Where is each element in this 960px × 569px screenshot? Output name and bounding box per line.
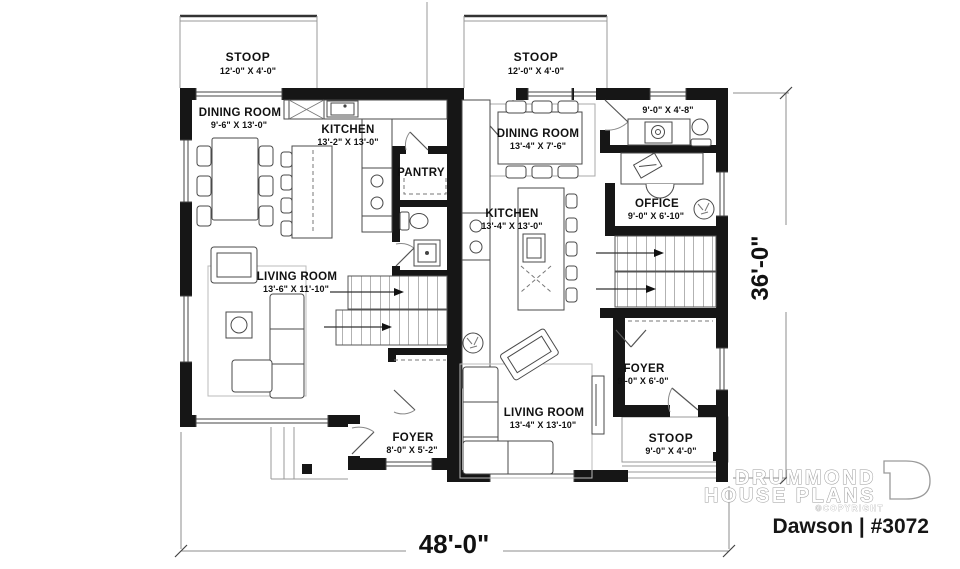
- island-sink: [523, 234, 545, 262]
- porch-bottom-left: [271, 427, 348, 479]
- left-living-size: 13'-6" X 11'-10": [263, 284, 329, 294]
- right-office-size: 9'-0" X 6'-10": [628, 211, 684, 221]
- stoop-top-left-name: STOOP: [226, 50, 271, 64]
- armchair-right: [499, 328, 559, 381]
- left-kitchen-name: KITCHEN: [321, 124, 374, 136]
- laundry-counter: [628, 119, 690, 145]
- right-foyer-name: FOYER: [623, 363, 665, 375]
- armchair-left: [211, 247, 257, 283]
- dimension-height: 36'-0": [733, 87, 792, 484]
- stoop-bottom-right-size: 9'-0" X 4'-0": [645, 446, 696, 456]
- stoop-top-left-size: 12'-0" X 4'-0": [220, 66, 276, 76]
- left-foyer-name: FOYER: [392, 432, 434, 444]
- kitchen-island-right: [518, 188, 577, 310]
- right-living-size: 13'-4" X 13'-10": [510, 420, 576, 430]
- right-utility-size: 9'-0" X 4'-8": [642, 105, 693, 115]
- powder-sink: [414, 240, 440, 266]
- plan-name-label: Dawson | #3072: [773, 515, 929, 538]
- stove: [362, 168, 392, 216]
- floor-plan-page: 48'-0" 36'-0" STOOP 12'-0" X 4'-0" STOOP…: [0, 0, 960, 569]
- stoop-bottom-right-name: STOOP: [649, 431, 694, 445]
- stairs-left: [324, 276, 447, 345]
- left-dining-size: 9'-6" X 13'-0": [211, 120, 267, 130]
- pantry-shelf: [404, 178, 446, 194]
- vent-box: [289, 100, 324, 119]
- floor-plan-canvas: 48'-0" 36'-0" STOOP 12'-0" X 4'-0" STOOP…: [0, 0, 960, 569]
- right-foyer-size: 9'-0" X 6'-0": [617, 376, 668, 386]
- width-dimension-label: 48'-0": [419, 529, 490, 559]
- office-desk: [621, 153, 703, 198]
- toilet: [400, 212, 428, 230]
- plant: [694, 199, 714, 219]
- stoop-top-right-name: STOOP: [514, 50, 559, 64]
- left-living-name: LIVING ROOM: [257, 271, 338, 283]
- kitchen-sink: [327, 101, 358, 117]
- tv-unit: [592, 376, 604, 434]
- chair: [691, 119, 711, 146]
- sofa-left: [232, 294, 304, 398]
- right-kitchen-name: KITCHEN: [485, 208, 538, 220]
- dining-table-left: [197, 138, 273, 226]
- drummond-logo-icon: [884, 461, 930, 499]
- side-table: [226, 312, 252, 338]
- left-dining-name: DINING ROOM: [199, 107, 282, 119]
- left-kitchen-size: 13'-2" X 13'-0": [317, 137, 378, 147]
- right-kitchen-size: 13'-4" X 13'-0": [481, 221, 542, 231]
- plant: [463, 333, 483, 353]
- brand-copyright: ©COPYRIGHT: [816, 504, 884, 513]
- right-office-name: OFFICE: [635, 198, 679, 210]
- kitchen-island-left: [281, 146, 332, 238]
- brand-block: DRUMMOND HOUSE PLANS ©COPYRIGHT Dawson |…: [704, 461, 930, 538]
- office-chair: [646, 184, 674, 198]
- right-living-name: LIVING ROOM: [504, 407, 585, 419]
- stoop-top-right-size: 12'-0" X 4'-0": [508, 66, 564, 76]
- left-pantry-name: PANTRY: [397, 167, 445, 179]
- right-dining-size: 13'-4" X 7'-6": [510, 141, 566, 151]
- height-dimension-label: 36'-0": [747, 235, 774, 300]
- right-dining-name: DINING ROOM: [497, 128, 580, 140]
- left-foyer-size: 8'-0" X 5'-2": [386, 445, 437, 455]
